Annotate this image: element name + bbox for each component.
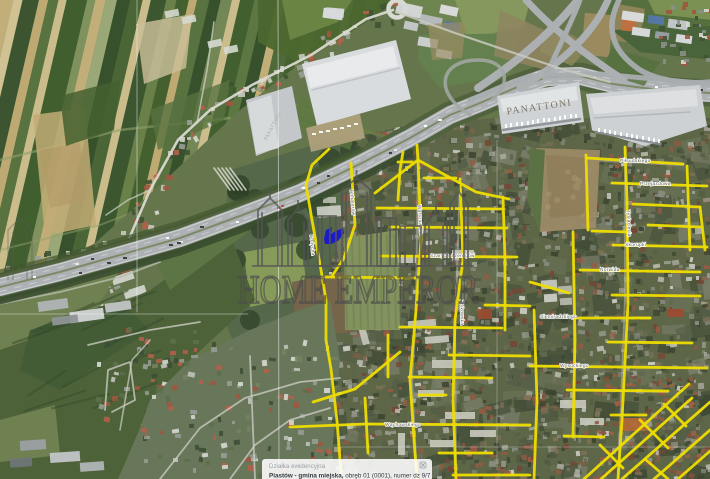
- svg-text:Norwida: Norwida: [600, 267, 620, 273]
- svg-text:Piastów - gmina miejska, obręb: Piastów - gmina miejska, obręb 01 (0001)…: [269, 473, 431, 479]
- svg-text:Skorupki: Skorupki: [625, 242, 646, 248]
- svg-text:Piłsudskiego: Piłsudskiego: [620, 158, 651, 164]
- svg-text:Działka ewidencyjna: Działka ewidencyjna: [269, 463, 326, 470]
- svg-text:Wąchowskiego: Wąchowskiego: [385, 422, 421, 428]
- svg-text:Siemiradzkiego: Siemiradzkiego: [540, 314, 577, 320]
- svg-text:HOME EMPEROR: HOME EMPEROR: [238, 267, 479, 312]
- svg-text:Wysockiego: Wysockiego: [560, 363, 589, 369]
- svg-text:Przejazdowa: Przejazdowa: [640, 181, 671, 187]
- svg-text:Tysiąclecia: Tysiąclecia: [625, 210, 632, 237]
